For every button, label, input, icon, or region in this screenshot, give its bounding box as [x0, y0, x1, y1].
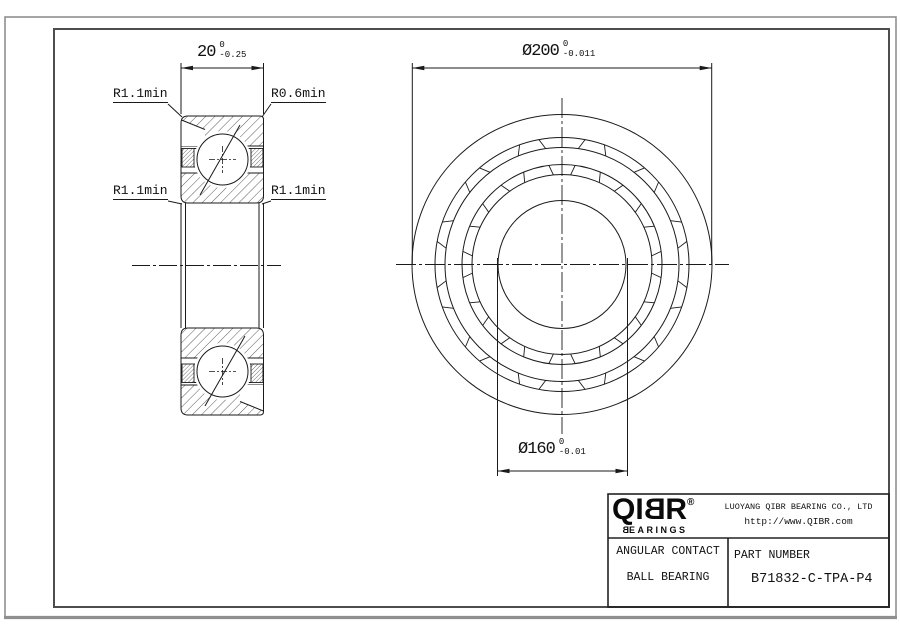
- front-view: [396, 63, 729, 476]
- bore-dimension-text: Ø160 0 -0.01: [518, 441, 586, 458]
- width-dimension-text: 20 0 -0.25: [197, 44, 246, 61]
- company-website: http://www.QIBR.com: [706, 516, 891, 527]
- width-tol-top: 0: [219, 40, 246, 50]
- cage-pocket-lines: [437, 140, 687, 390]
- sheet-frames: [4, 17, 897, 618]
- part-number-value: B71832-C-TPA-P4: [751, 572, 873, 587]
- bore-value: Ø160: [518, 441, 555, 458]
- product-type-cell: ANGULAR CONTACT BALL BEARING: [609, 546, 727, 583]
- section-view: [132, 63, 281, 415]
- od-value: Ø200: [522, 43, 559, 60]
- radius-label-top-right: R0.6min: [271, 87, 326, 103]
- product-type-line1: ANGULAR CONTACT: [609, 546, 727, 558]
- radius-label-top-left: R1.1min: [113, 87, 168, 103]
- radius-label-mid-left: R1.1min: [113, 184, 168, 200]
- width-tol-bottom: -0.25: [219, 50, 246, 60]
- od-dimension-text: Ø200 0 -0.011: [522, 43, 595, 60]
- od-tol-bottom: -0.011: [563, 49, 595, 59]
- brand-logo-subtext: BEARINGS: [620, 525, 708, 535]
- registered-mark: ®: [687, 497, 694, 508]
- company-name: LUOYANG QIBR BEARING CO., LTD: [706, 502, 891, 512]
- brand-logo-text: QIBR: [612, 493, 687, 526]
- bore-tol-bottom: -0.01: [559, 447, 586, 457]
- company-block: LUOYANG QIBR BEARING CO., LTD http://www…: [706, 502, 891, 527]
- od-tol-top: 0: [563, 39, 595, 49]
- width-dimension: [181, 63, 264, 114]
- product-type-line2: BALL BEARING: [609, 572, 727, 584]
- drawing-sheet: 20 0 -0.25 Ø200 0 -0.011 Ø160 0 -0.01 R1…: [0, 0, 900, 636]
- bore-tol-top: 0: [559, 437, 586, 447]
- brand-logo: QIBR® BEARINGS: [612, 495, 708, 535]
- part-number-label: PART NUMBER: [734, 549, 810, 562]
- radius-label-mid-right: R1.1min: [271, 184, 326, 200]
- width-value: 20: [197, 44, 215, 61]
